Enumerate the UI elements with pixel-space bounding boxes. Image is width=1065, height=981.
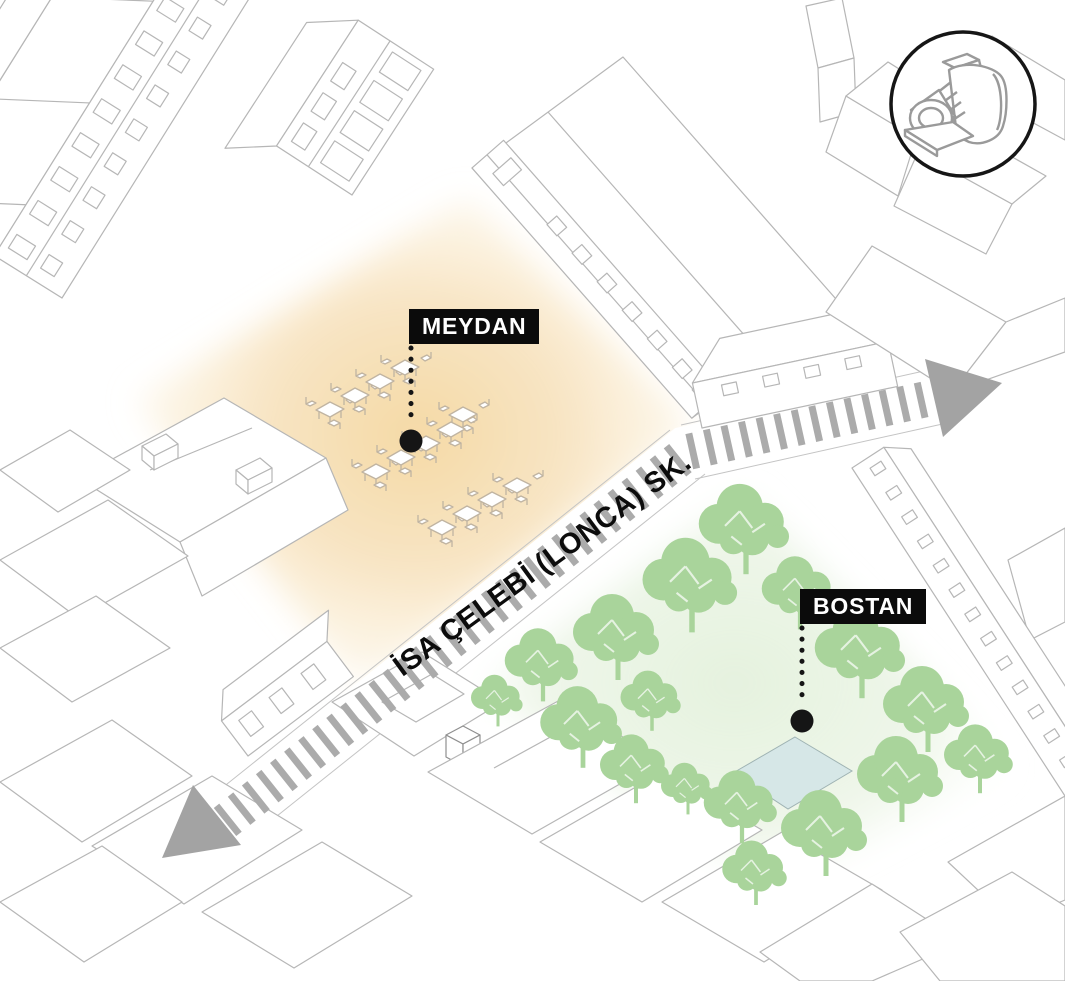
meydan-label: MEYDAN	[409, 309, 539, 344]
site-plan-canvas	[0, 0, 1065, 981]
bostan-label: BOSTAN	[800, 589, 926, 624]
site-plan: MEYDAN BOSTAN İSA ÇELEBİ (LONCA) SK.	[0, 0, 1065, 981]
building-shop-top	[225, 0, 434, 220]
building-top-left	[0, 0, 259, 369]
camera-badge[interactable]	[891, 32, 1035, 176]
